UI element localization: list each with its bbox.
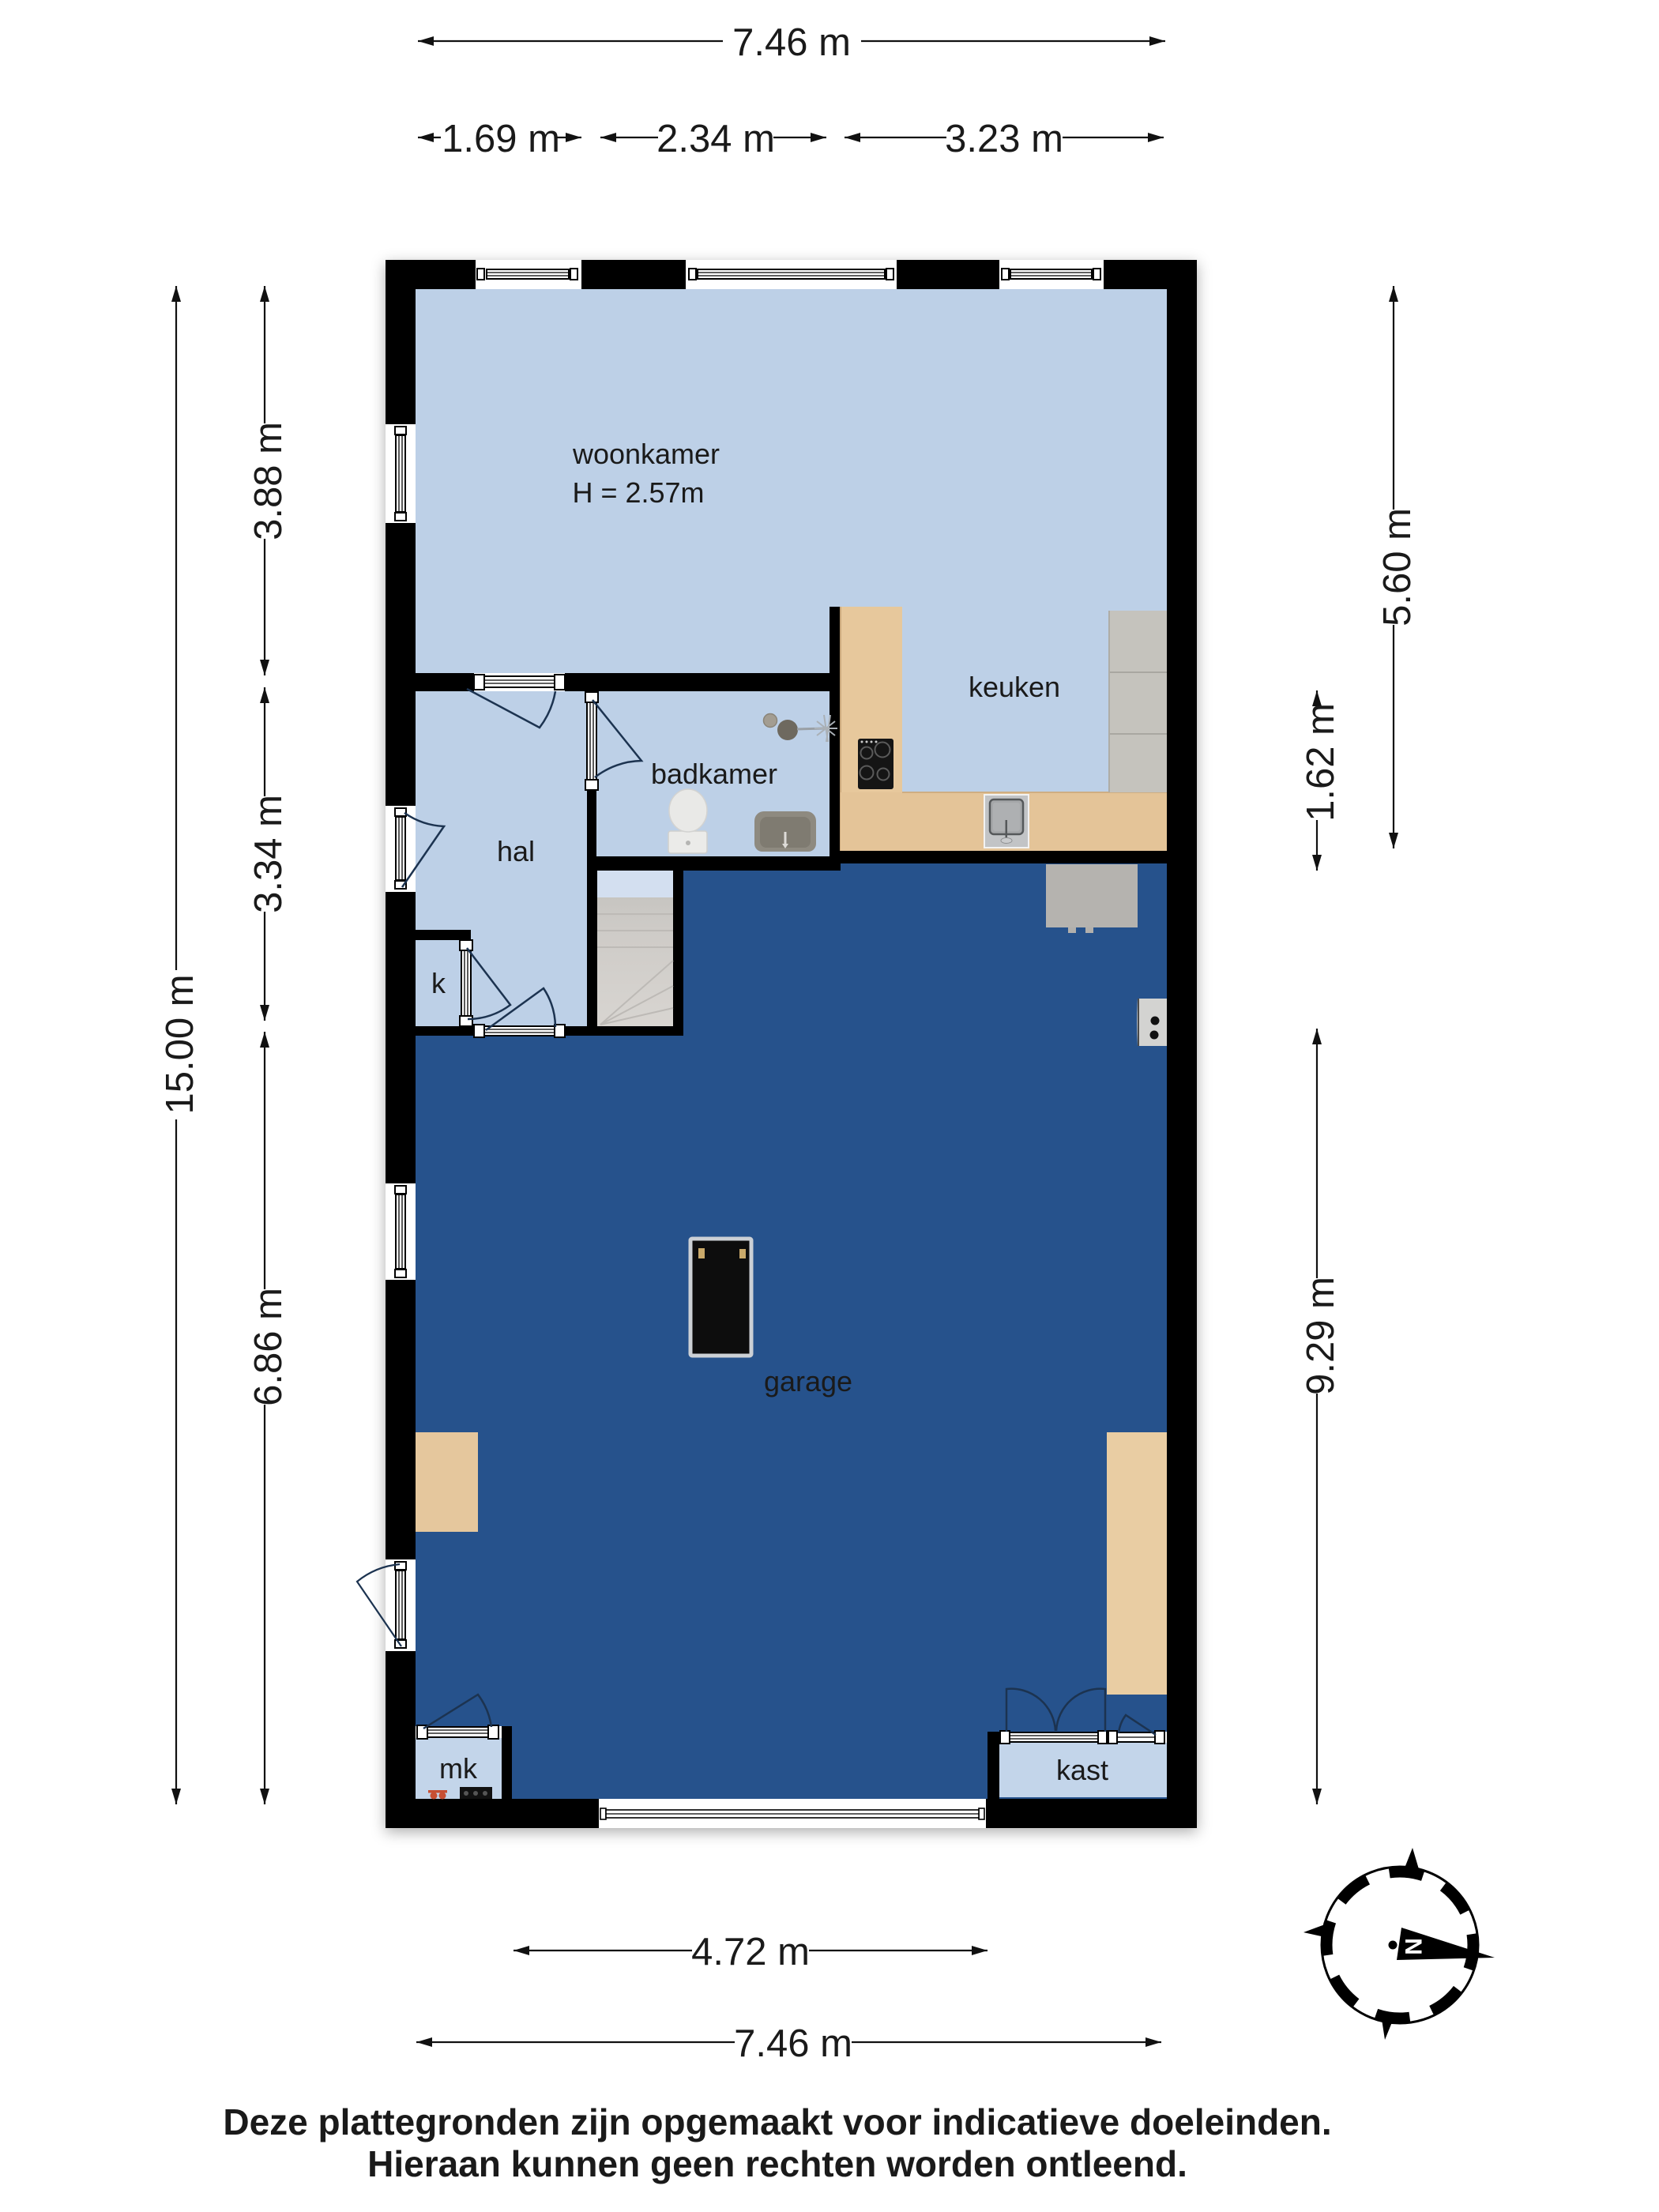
svg-text:3.88 m: 3.88 m — [247, 422, 290, 540]
svg-text:H = 2.57m: H = 2.57m — [572, 476, 704, 509]
svg-text:9.29 m: 9.29 m — [1300, 1277, 1342, 1395]
svg-text:7.46 m: 7.46 m — [732, 21, 851, 64]
svg-text:4.72 m: 4.72 m — [691, 1931, 810, 1973]
svg-text:k: k — [431, 967, 446, 999]
svg-text:badkamer: badkamer — [651, 758, 777, 790]
svg-text:1.69 m: 1.69 m — [442, 118, 560, 160]
svg-text:6.86 m: 6.86 m — [247, 1288, 290, 1406]
svg-text:Hieraan kunnen geen rechten wo: Hieraan kunnen geen rechten worden ontle… — [367, 2143, 1187, 2184]
svg-text:5.60 m: 5.60 m — [1376, 508, 1419, 626]
svg-text:kast: kast — [1056, 1754, 1108, 1786]
svg-text:3.34 m: 3.34 m — [247, 795, 290, 913]
svg-text:15.00 m: 15.00 m — [159, 974, 201, 1114]
svg-text:woonkamer: woonkamer — [572, 438, 720, 470]
svg-text:3.23 m: 3.23 m — [945, 118, 1063, 160]
svg-text:garage: garage — [764, 1365, 852, 1398]
svg-text:Deze plattegronden zijn opgema: Deze plattegronden zijn opgemaakt voor i… — [223, 2101, 1331, 2142]
svg-text:mk: mk — [439, 1752, 478, 1785]
svg-text:1.62 m: 1.62 m — [1300, 703, 1342, 822]
svg-text:7.46 m: 7.46 m — [734, 2022, 852, 2065]
svg-text:N: N — [1400, 1938, 1426, 1955]
svg-text:keuken: keuken — [969, 671, 1060, 703]
svg-text:hal: hal — [497, 835, 535, 867]
svg-text:2.34 m: 2.34 m — [656, 118, 775, 160]
